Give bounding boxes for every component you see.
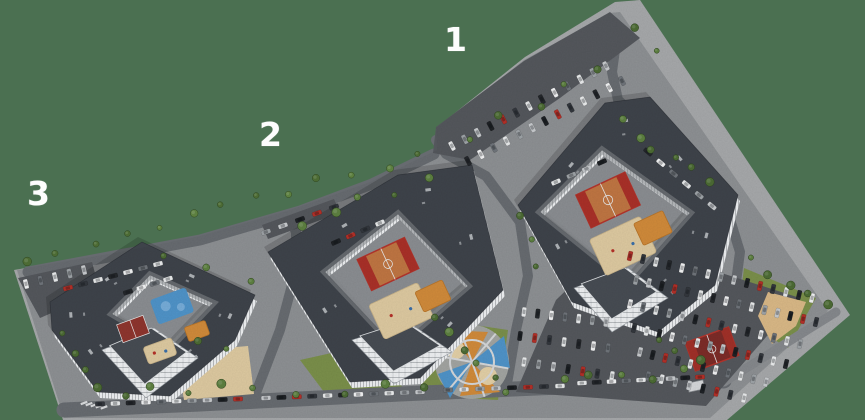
tree-highlight bbox=[254, 193, 257, 196]
tree-highlight bbox=[53, 251, 56, 254]
tree-highlight bbox=[24, 258, 28, 262]
aerial-render: 1 2 3 bbox=[0, 0, 865, 420]
tree-highlight bbox=[158, 226, 160, 228]
phase-2-label[interactable]: 2 bbox=[259, 118, 282, 151]
tree-highlight bbox=[313, 175, 316, 178]
tree-highlight bbox=[192, 211, 195, 214]
tree-highlight bbox=[349, 173, 352, 176]
tree-highlight bbox=[387, 166, 390, 169]
site-plan-svg bbox=[0, 0, 865, 420]
tree-highlight bbox=[218, 203, 221, 206]
tree-highlight bbox=[286, 192, 289, 195]
phase-1-label[interactable]: 1 bbox=[444, 23, 467, 56]
tree-highlight bbox=[416, 152, 418, 154]
phase-3-label[interactable]: 3 bbox=[27, 177, 50, 210]
tree-highlight bbox=[94, 242, 97, 245]
scene-root bbox=[0, 0, 865, 420]
tree-highlight bbox=[125, 232, 128, 235]
